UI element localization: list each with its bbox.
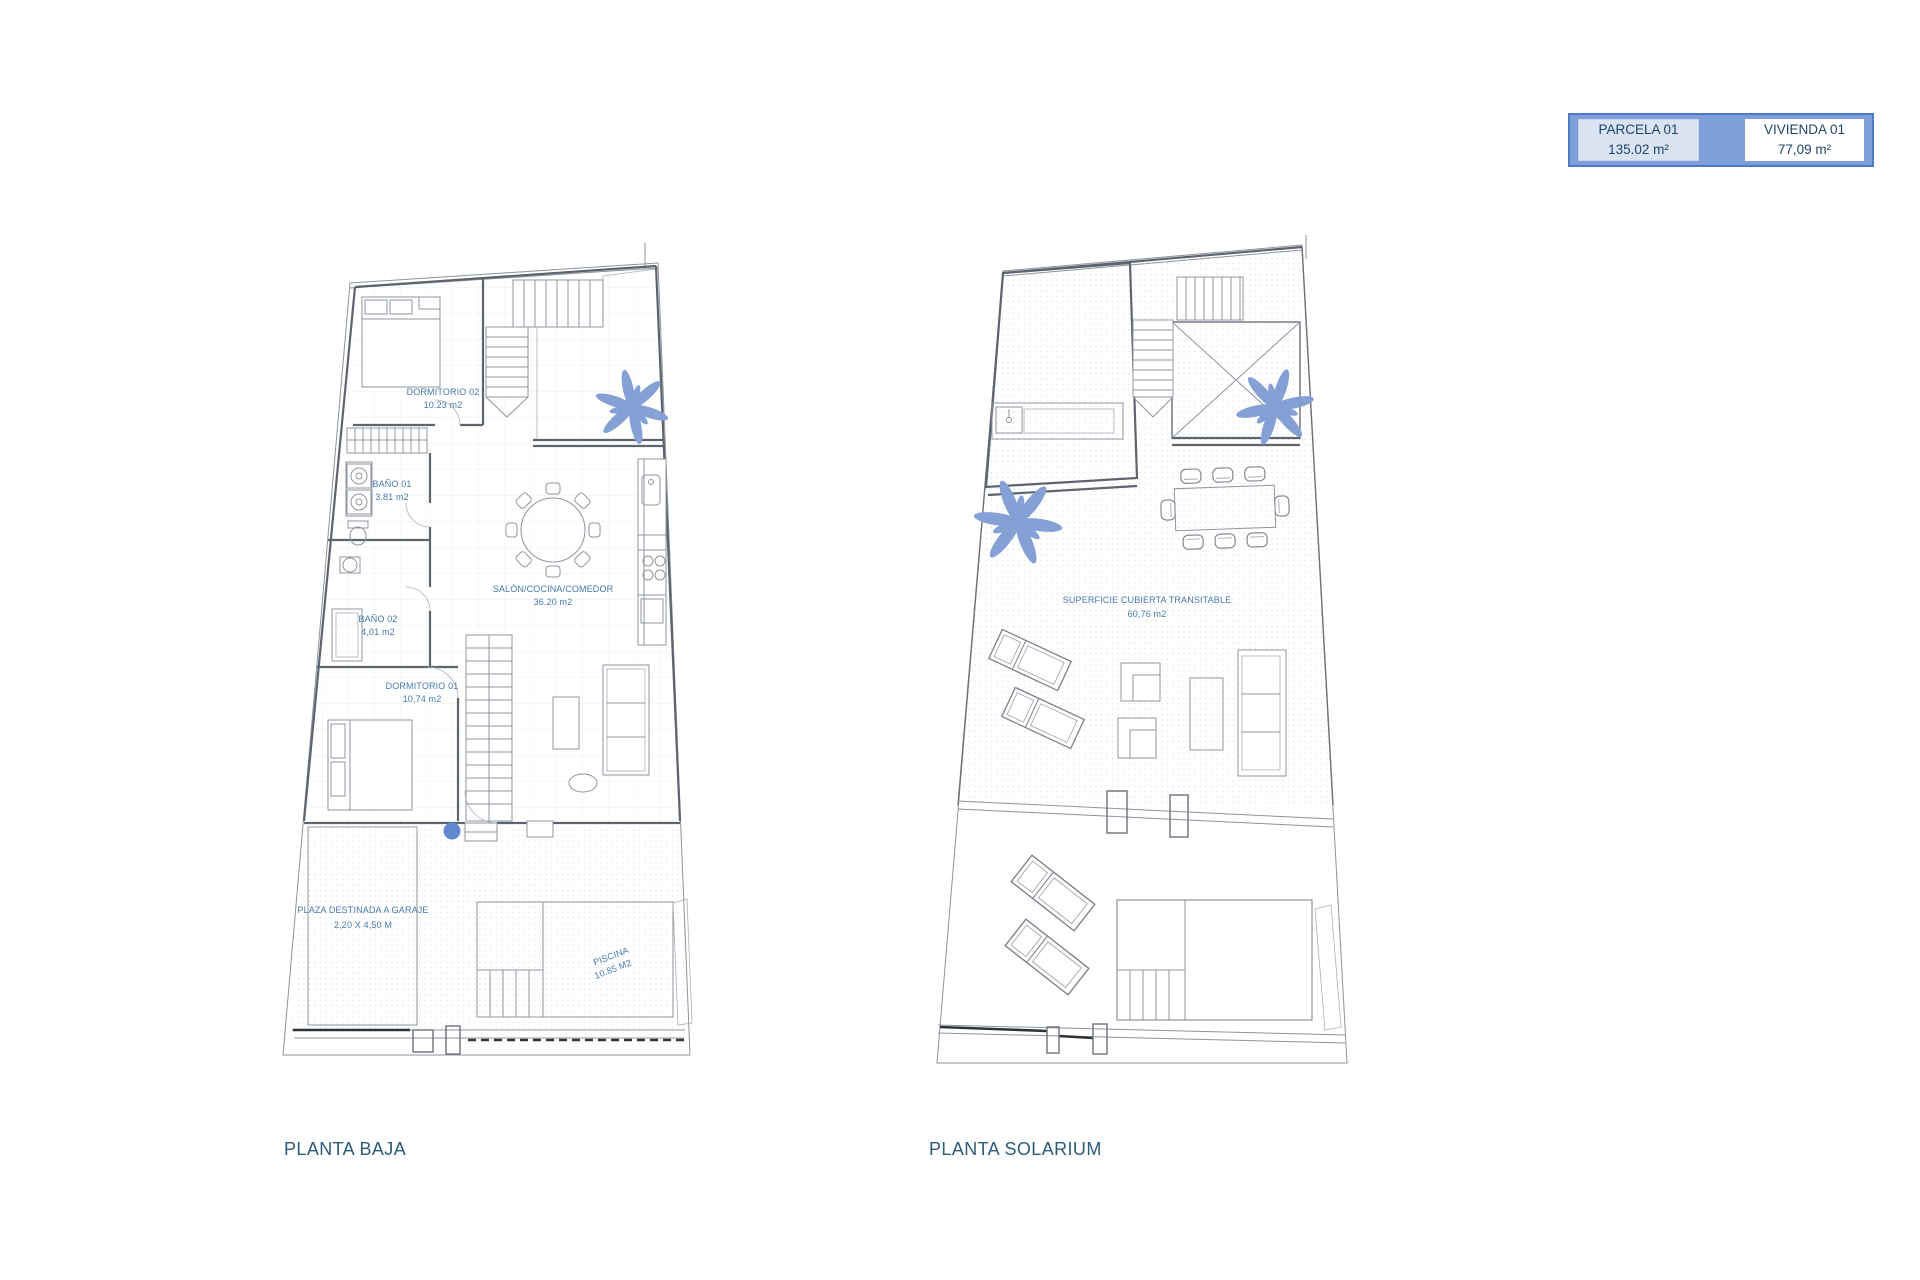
lounger-icon xyxy=(1011,855,1095,931)
dormitorio02-area: 10.23 m2 xyxy=(424,400,463,410)
dormitorio01-area: 10,74 m2 xyxy=(403,694,442,704)
planta-baja-title: PLANTA BAJA xyxy=(284,1139,406,1160)
dormitorio01-label: DORMITORIO 01 xyxy=(386,681,459,691)
parcela-value: 135.02 m² xyxy=(1579,140,1698,160)
bano01-area: 3.81 m2 xyxy=(375,492,409,502)
area-summary-table: PARCELA 01 135.02 m² VIVIENDA 01 77,09 m… xyxy=(1568,113,1874,167)
wardrobe-icon xyxy=(347,428,427,453)
stair-block xyxy=(1117,900,1312,1020)
stairs-icon xyxy=(466,635,512,821)
vivienda-label: VIVIENDA 01 xyxy=(1745,120,1864,140)
parcela-label: PARCELA 01 xyxy=(1579,120,1698,140)
sofa-icon xyxy=(1238,650,1286,776)
bano01-label: BAÑO 01 xyxy=(372,479,411,489)
planta-solarium-drawing: SUPERFICIE CUBIERTA TRANSITABLE 60,76 m2 xyxy=(930,235,1360,1075)
bed-icon xyxy=(328,720,412,810)
vivienda-value: 77,09 m² xyxy=(1745,140,1864,160)
superficie-label: SUPERFICIE CUBIERTA TRANSITABLE xyxy=(1063,595,1232,605)
bano02-label: BAÑO 02 xyxy=(358,614,397,624)
lower-terrace xyxy=(1005,855,1341,1030)
planta-baja-drawing: DORMITORIO 02 10.23 m2 BAÑO 01 3.81 m2 B… xyxy=(270,235,700,1075)
bed-icon xyxy=(362,297,440,387)
superficie-area: 60,76 m2 xyxy=(1128,609,1167,619)
street-boundary xyxy=(938,1024,1345,1054)
vivienda-cell: VIVIENDA 01 77,09 m² xyxy=(1745,119,1864,161)
bano02-area: 4,01 m2 xyxy=(361,627,395,637)
planter-strip xyxy=(1315,905,1341,1030)
tree-marker xyxy=(444,823,461,840)
kitchen-counter-icon xyxy=(638,459,666,645)
garaje-label: PLAZA DESTINADA A GARAJE xyxy=(297,905,428,915)
dormitorio02-label: DORMITORIO 02 xyxy=(407,387,480,397)
lounger-icon xyxy=(1005,919,1089,995)
street-boundary xyxy=(292,1026,685,1054)
salon-area: 36.20 m2 xyxy=(534,597,573,607)
planta-solarium-title: PLANTA SOLARIUM xyxy=(929,1139,1102,1160)
salon-label: SALÓN/COCINA/COMEDOR xyxy=(493,584,614,594)
parcela-cell: PARCELA 01 135.02 m² xyxy=(1578,119,1699,161)
garaje-dims: 2,20 X 4,50 M xyxy=(334,920,392,930)
legend-divider xyxy=(1699,119,1745,161)
